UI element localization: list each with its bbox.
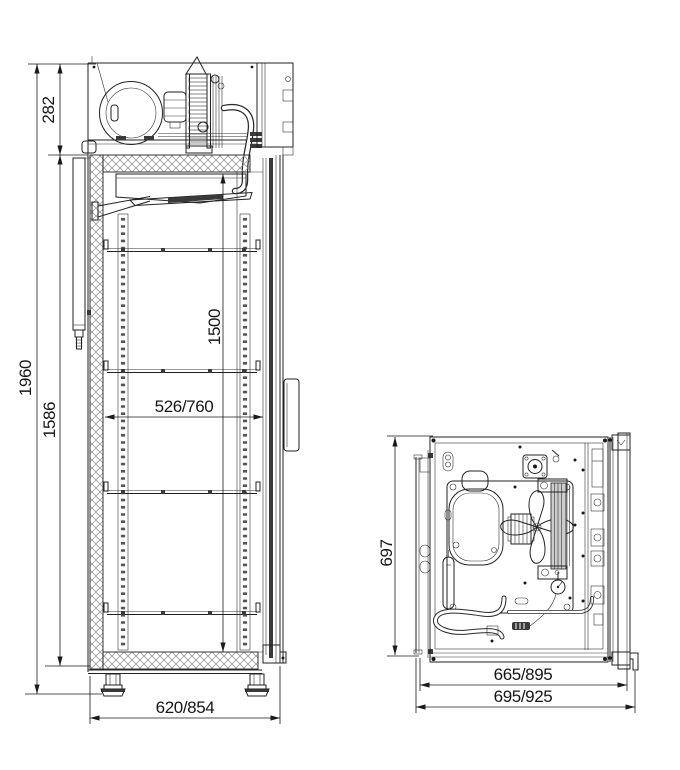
door-section	[257, 63, 299, 663]
technical-drawing-page: 1960 282 1586 1500 526/760 620/854	[0, 0, 680, 770]
bottom-hinge	[608, 652, 638, 670]
drain-pipe	[73, 158, 90, 349]
starter-capacitor	[164, 92, 186, 128]
door-top-hinge-base	[250, 132, 262, 148]
compressor-side	[100, 82, 163, 145]
pressure-gauge	[512, 572, 565, 630]
shelf	[104, 603, 260, 615]
fan-mount-plate	[523, 450, 559, 478]
dim-body-depth: 697	[377, 539, 396, 566]
serpentine-pipe	[435, 598, 504, 643]
foot	[101, 674, 125, 696]
fan-motor	[508, 514, 534, 544]
compressor-top	[445, 471, 503, 565]
shelves	[104, 240, 260, 615]
shelf	[104, 240, 260, 252]
door-gasket	[269, 158, 273, 658]
machine-compartment	[82, 56, 262, 672]
hinge-side-column	[582, 443, 605, 650]
top-view: 697 665/895 695/925	[377, 433, 638, 713]
dim-body-height: 1586	[40, 402, 59, 438]
door-handle[interactable]	[284, 379, 299, 451]
cabinet-technical-drawing: 1960 282 1586 1500 526/760 620/854	[0, 0, 680, 770]
door-edge	[608, 433, 638, 670]
dim-interior-height: 1500	[205, 309, 224, 345]
dim-body-width: 665/895	[494, 665, 553, 684]
filter-drier	[443, 550, 454, 609]
dim-overall-height: 1960	[16, 360, 35, 396]
dim-overall-depth: 620/854	[156, 698, 215, 717]
dim-interior-depth: 526/760	[155, 397, 214, 416]
bottom-insulation	[103, 652, 258, 669]
evaporator	[92, 174, 252, 220]
dim-overall-width: 695/925	[494, 687, 553, 706]
side-view: 1960 282 1586 1500 526/760 620/854	[16, 56, 299, 724]
clip-screw	[553, 456, 559, 462]
condenser-side	[186, 57, 224, 153]
bottom-right-pipe	[509, 598, 592, 612]
adjustable-feet	[101, 674, 269, 696]
discharge-pipe	[224, 107, 251, 191]
shelf	[104, 361, 260, 373]
shelf	[104, 482, 260, 494]
left-wall-insulation	[90, 155, 103, 669]
foot	[245, 674, 269, 696]
shelf-rails	[118, 214, 250, 650]
door-top-bracket	[257, 63, 293, 155]
top-insulation	[103, 155, 250, 172]
dim-compartment-height: 282	[39, 96, 58, 123]
